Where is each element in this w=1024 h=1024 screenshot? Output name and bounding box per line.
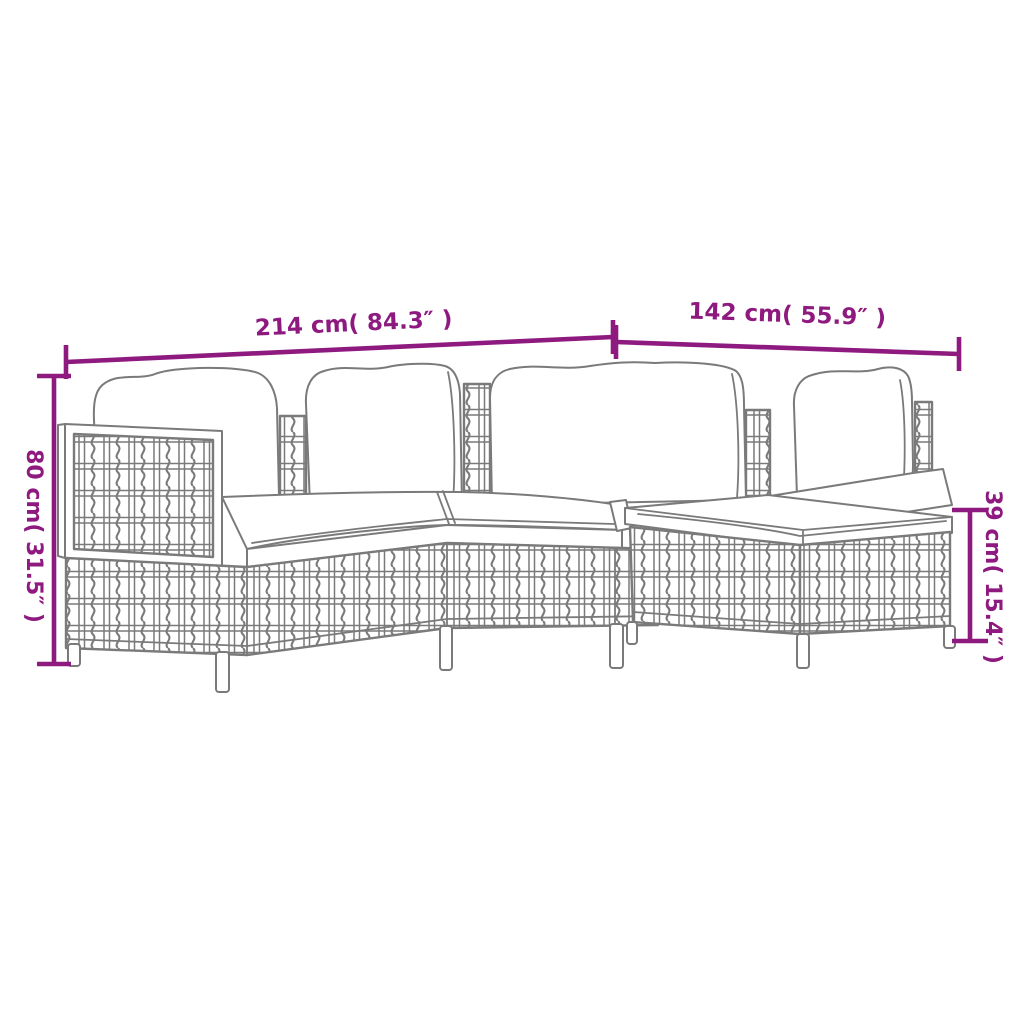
armrest-weave [74, 434, 213, 557]
leg [627, 622, 637, 644]
footstool-base-right [800, 532, 950, 634]
product-dimension-image: 214 cm( 84.3″ ) 142 cm( 55.9″ ) 80 cm( 3… [0, 0, 1024, 1024]
leg [216, 652, 229, 692]
total-width-label: 214 cm( 84.3″ ) [254, 306, 453, 341]
dimension-line [66, 337, 613, 362]
armrest-panel [58, 424, 222, 576]
dimension-line [616, 342, 959, 354]
depth-label: 142 cm( 55.9″ ) [688, 299, 886, 332]
sofa-set-illustration [58, 362, 955, 692]
back-cushion [490, 362, 746, 505]
dimension-seat-height: 39 cm( 15.4″ ) [952, 490, 1005, 664]
dimension-depth: 142 cm( 55.9″ ) [616, 299, 959, 371]
leg [944, 626, 955, 648]
leg [440, 626, 452, 670]
seat-height-label: 39 cm( 15.4″ ) [980, 490, 1005, 664]
armrest-side-edge [58, 424, 65, 558]
leg [610, 624, 623, 668]
back-post [464, 384, 490, 496]
sofa-base [66, 543, 658, 692]
back-height-label: 80 cm( 31.5″ ) [21, 449, 46, 623]
back-post [746, 410, 770, 496]
back-cushion [306, 364, 462, 505]
footstool [625, 495, 955, 668]
leg [797, 634, 809, 668]
dimension-diagram-canvas: 214 cm( 84.3″ ) 142 cm( 55.9″ ) 80 cm( 3… [0, 0, 1024, 1024]
